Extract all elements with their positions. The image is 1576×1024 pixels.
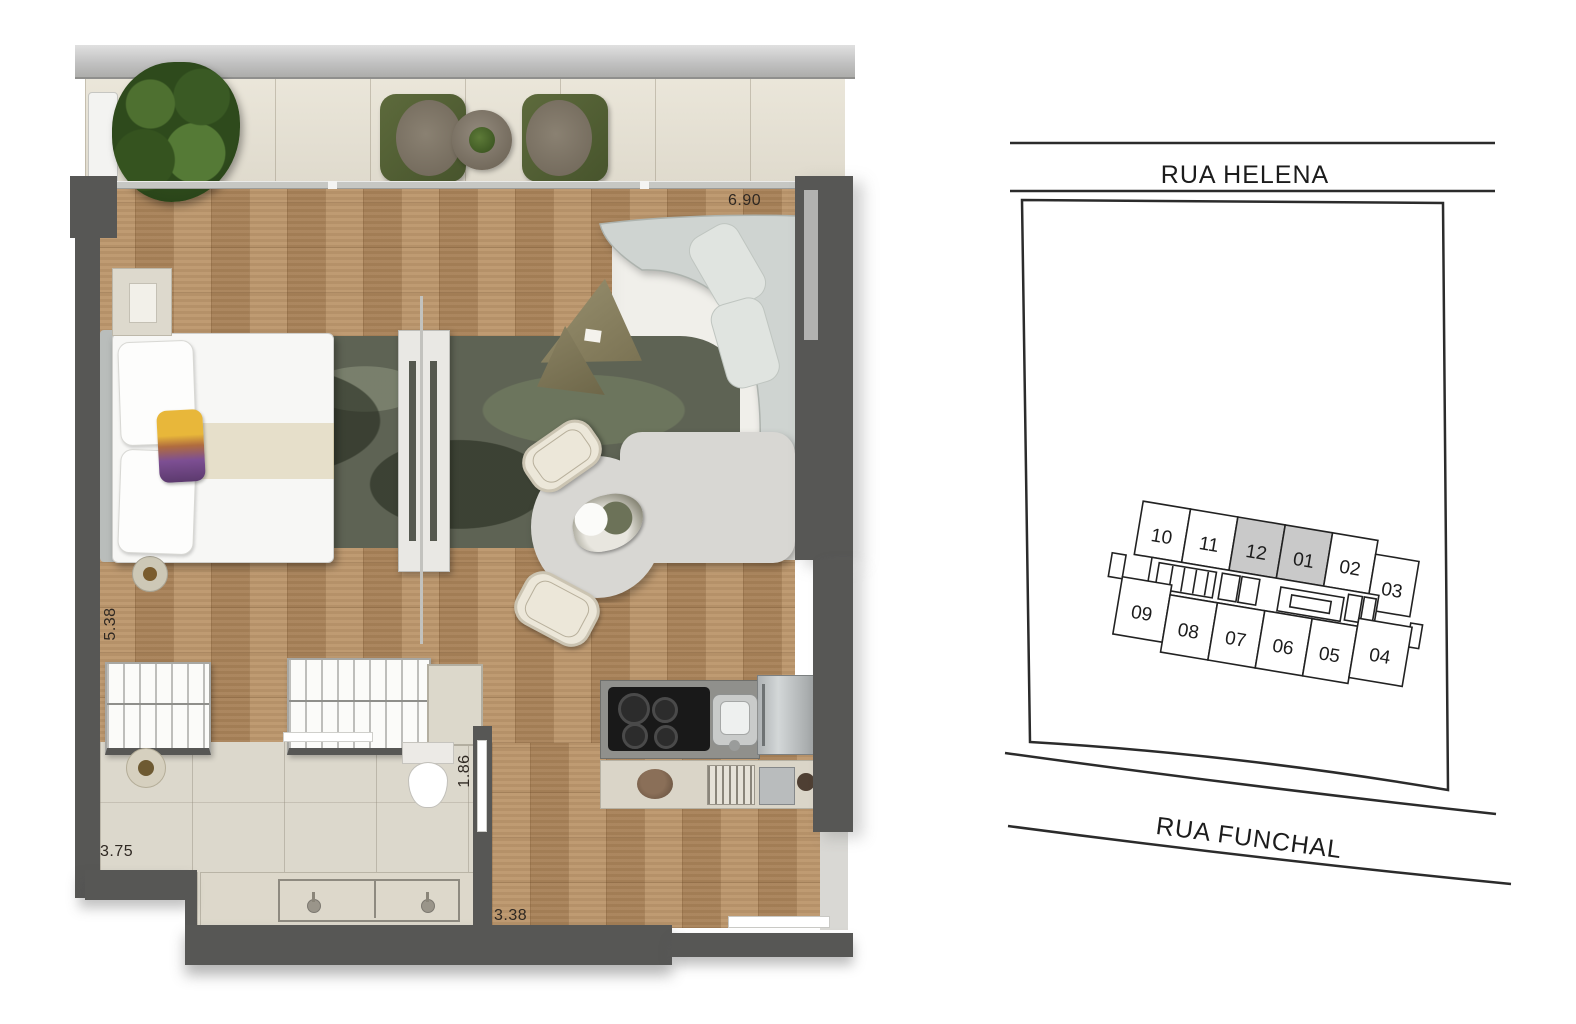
balcony-chair-right — [522, 94, 608, 182]
unit-label-11: 11 — [1197, 533, 1220, 557]
wardrobe-rail — [289, 700, 429, 702]
side-door-panel — [804, 190, 818, 340]
sliding-room-divider — [398, 330, 450, 572]
glass-door-gap — [328, 181, 337, 189]
divider-slot — [409, 361, 416, 541]
unit-label-09: 09 — [1129, 602, 1153, 626]
nightstand-lamp — [129, 283, 157, 323]
bathroom-side-door — [477, 740, 487, 832]
drain-core — [138, 760, 154, 776]
burner — [618, 693, 650, 725]
building-outline: 10 11 12 01 02 03 09 08 07 06 05 04 — [1097, 498, 1435, 694]
unit-label-12: 12 — [1244, 541, 1268, 565]
kitchen-sink — [712, 694, 758, 746]
decorative-pillow — [156, 409, 206, 483]
site-boundary — [1022, 200, 1448, 790]
bathroom-vanity — [200, 872, 475, 927]
chair-seat — [526, 100, 592, 176]
dish-rack — [707, 765, 755, 805]
core-cell — [1218, 573, 1240, 602]
wall-right-lower — [813, 560, 853, 832]
dimension-label-top: 6.90 — [728, 192, 761, 210]
table-plant — [469, 127, 495, 153]
unit-label-02: 02 — [1338, 557, 1362, 581]
burner — [622, 723, 648, 749]
unit-label-08: 08 — [1176, 620, 1200, 644]
wall — [185, 896, 197, 927]
building-notch — [1108, 553, 1126, 579]
stool-detail — [143, 567, 157, 581]
faucet — [307, 899, 321, 913]
bedside-stool — [132, 556, 168, 592]
divider-rail — [420, 296, 423, 644]
unit-label-10: 10 — [1149, 525, 1173, 549]
kitchen-island — [600, 760, 819, 809]
street-name-top: RUA HELENA — [1161, 161, 1329, 189]
glass-door-gap — [640, 181, 649, 189]
sink-tap — [729, 740, 740, 751]
divider-slot — [430, 361, 437, 541]
bowl — [637, 769, 673, 799]
unit-label-04: 04 — [1368, 645, 1393, 669]
burner — [652, 697, 678, 723]
wardrobe-rail — [107, 703, 209, 705]
balcony-table — [452, 110, 512, 170]
floor-plan-page: 6.90 5.38 1.86 3.75 3.38 RUA HELENA — [0, 0, 1576, 1024]
dimension-label-bath-door: 1.86 — [456, 731, 474, 811]
dimension-label-bottom: 3.38 — [494, 907, 527, 925]
fridge-handle — [762, 684, 765, 746]
sink-basin — [720, 701, 750, 735]
dimension-label-left: 5.38 — [102, 579, 120, 669]
toilet-tank — [402, 742, 454, 764]
wall-bottom — [185, 925, 672, 965]
site-key-plan: RUA HELENA — [980, 120, 1520, 900]
appliance — [759, 767, 795, 805]
bed-runner — [198, 423, 334, 479]
cooktop — [608, 687, 710, 751]
balcony-glass-doors — [100, 181, 840, 189]
wall — [85, 870, 197, 900]
dimension-label-bath-width: 3.75 — [100, 843, 133, 861]
shower-drain — [126, 748, 166, 788]
core-cell — [1238, 577, 1260, 606]
unit-label-03: 03 — [1380, 579, 1404, 603]
faucet — [421, 899, 435, 913]
unit-label-05: 05 — [1317, 643, 1341, 667]
unit-label-07: 07 — [1223, 628, 1247, 652]
wall-left — [75, 176, 100, 898]
unit-label-06: 06 — [1271, 636, 1295, 660]
unit-label-01: 01 — [1291, 549, 1315, 573]
bathroom-door — [283, 732, 373, 742]
nightstand — [112, 268, 172, 336]
vanity-divider — [374, 879, 376, 918]
wardrobe-left — [105, 662, 211, 755]
wall-bottom-right — [672, 933, 853, 957]
refrigerator — [757, 675, 817, 755]
pouf-tag — [584, 329, 602, 343]
entry-niche — [820, 830, 848, 930]
burner — [654, 725, 678, 749]
entry-door — [728, 916, 830, 928]
